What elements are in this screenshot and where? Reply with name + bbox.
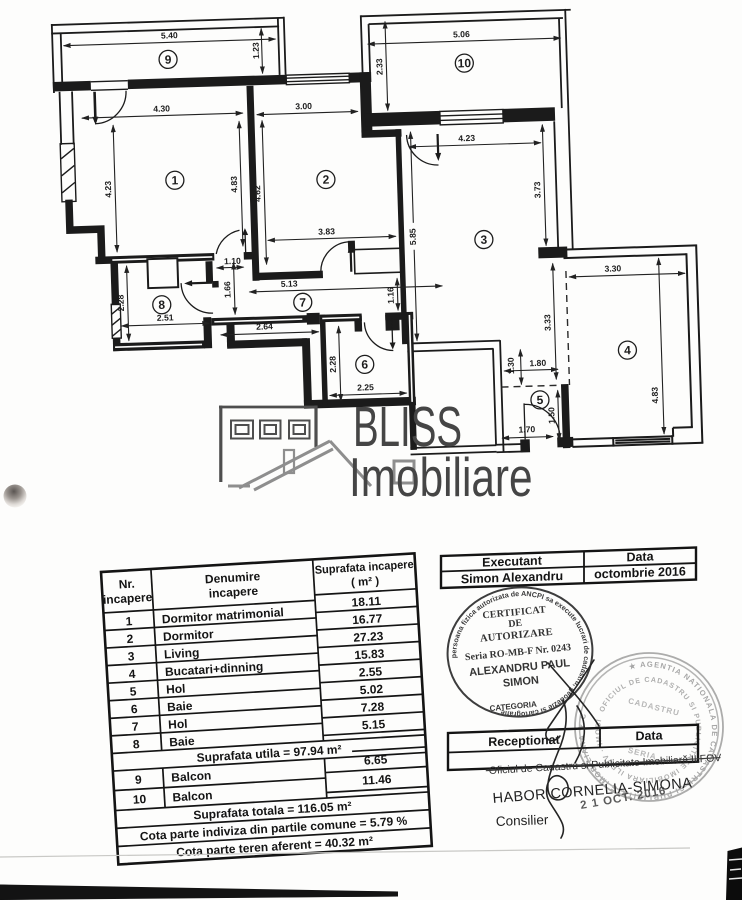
- svg-text:Hol: Hol: [168, 717, 188, 732]
- svg-text:1.66: 1.66: [222, 281, 233, 298]
- svg-text:10: 10: [132, 792, 146, 807]
- svg-text:CADASTRU: CADASTRU: [627, 696, 680, 718]
- svg-text:3.73: 3.73: [532, 181, 543, 198]
- svg-text:11.46: 11.46: [362, 772, 392, 788]
- svg-text:16.77: 16.77: [352, 611, 383, 627]
- svg-text:Balcon: Balcon: [172, 788, 213, 804]
- svg-text:10: 10: [457, 56, 471, 70]
- svg-text:5: 5: [536, 393, 543, 407]
- svg-text:SIMON: SIMON: [502, 674, 539, 689]
- svg-text:incapere: incapere: [103, 590, 153, 607]
- svg-text:3: 3: [480, 233, 487, 247]
- svg-text:5.13: 5.13: [281, 278, 298, 289]
- svg-text:3: 3: [127, 649, 135, 663]
- svg-text:3.00: 3.00: [295, 101, 312, 112]
- svg-text:1.50: 1.50: [546, 407, 557, 424]
- svg-text:2.64: 2.64: [256, 321, 273, 332]
- svg-text:Nr.: Nr.: [118, 577, 135, 592]
- svg-text:Suprafata incapere: Suprafata incapere: [314, 559, 414, 577]
- svg-text:DE: DE: [508, 618, 523, 630]
- svg-text:4.23: 4.23: [103, 181, 114, 198]
- svg-text:Baie: Baie: [167, 699, 193, 714]
- svg-text:6: 6: [361, 357, 368, 371]
- svg-text:9: 9: [165, 52, 172, 66]
- svg-text:1.70: 1.70: [518, 424, 535, 435]
- svg-text:1: 1: [171, 173, 178, 187]
- svg-text:8: 8: [158, 298, 165, 312]
- svg-text:Living: Living: [164, 645, 200, 661]
- svg-text:incapere: incapere: [208, 584, 258, 601]
- svg-text:2.25: 2.25: [357, 382, 374, 393]
- svg-text:3.33: 3.33: [542, 314, 553, 331]
- svg-text:4: 4: [624, 343, 631, 357]
- svg-text:4: 4: [128, 667, 136, 681]
- svg-text:7.28: 7.28: [360, 699, 384, 714]
- svg-text:1.16: 1.16: [385, 287, 396, 304]
- svg-text:4.30: 4.30: [153, 103, 170, 114]
- svg-text:Bucatari+dinning: Bucatari+dinning: [165, 659, 264, 679]
- svg-text:9: 9: [135, 772, 143, 786]
- svg-text:Data: Data: [635, 728, 663, 743]
- svg-text:Imobiliare: Imobiliare: [349, 448, 533, 509]
- svg-text:5: 5: [129, 684, 137, 698]
- svg-text:6: 6: [130, 702, 138, 716]
- svg-text:7: 7: [299, 295, 306, 309]
- svg-text:5.02: 5.02: [359, 682, 383, 697]
- svg-text:Hol: Hol: [166, 682, 186, 697]
- svg-text:Data: Data: [626, 549, 654, 564]
- svg-text:1.23: 1.23: [251, 42, 262, 59]
- svg-text:octombrie 2016: octombrie 2016: [594, 564, 686, 581]
- svg-text:2.55: 2.55: [358, 664, 382, 679]
- svg-text:5.85: 5.85: [407, 228, 418, 245]
- svg-text:7: 7: [131, 720, 139, 734]
- svg-text:5.40: 5.40: [161, 30, 178, 41]
- svg-text:1.80: 1.80: [529, 358, 546, 369]
- svg-text:Balcon: Balcon: [171, 768, 212, 784]
- svg-text:( m² ): ( m² ): [351, 576, 380, 590]
- svg-text:1.10: 1.10: [224, 256, 241, 267]
- svg-text:2: 2: [126, 632, 134, 646]
- svg-text:3.83: 3.83: [318, 226, 335, 237]
- svg-text:Consilier: Consilier: [496, 812, 550, 829]
- svg-text:Executant: Executant: [482, 554, 543, 570]
- svg-text:6.65: 6.65: [364, 752, 388, 767]
- svg-text:15.83: 15.83: [354, 647, 385, 663]
- svg-text:5.15: 5.15: [361, 717, 385, 732]
- svg-text:4.23: 4.23: [458, 133, 475, 144]
- svg-text:Baie: Baie: [169, 734, 195, 749]
- svg-text:1.30: 1.30: [506, 357, 517, 374]
- svg-text:3.30: 3.30: [604, 263, 621, 274]
- svg-text:4.83: 4.83: [650, 387, 661, 404]
- svg-text:AUTORIZARE: AUTORIZARE: [480, 627, 554, 645]
- svg-text:5.06: 5.06: [453, 29, 470, 40]
- svg-text:1: 1: [125, 614, 133, 628]
- svg-text:27.23: 27.23: [353, 629, 384, 645]
- svg-text:4.83: 4.83: [229, 176, 240, 193]
- svg-text:2.28: 2.28: [327, 356, 338, 373]
- svg-text:8: 8: [133, 737, 141, 751]
- svg-text:2: 2: [322, 173, 329, 187]
- svg-text:18.11: 18.11: [351, 594, 381, 610]
- svg-text:4.62: 4.62: [252, 185, 263, 202]
- svg-text:2.33: 2.33: [374, 58, 385, 75]
- svg-text:2.28: 2.28: [115, 294, 126, 311]
